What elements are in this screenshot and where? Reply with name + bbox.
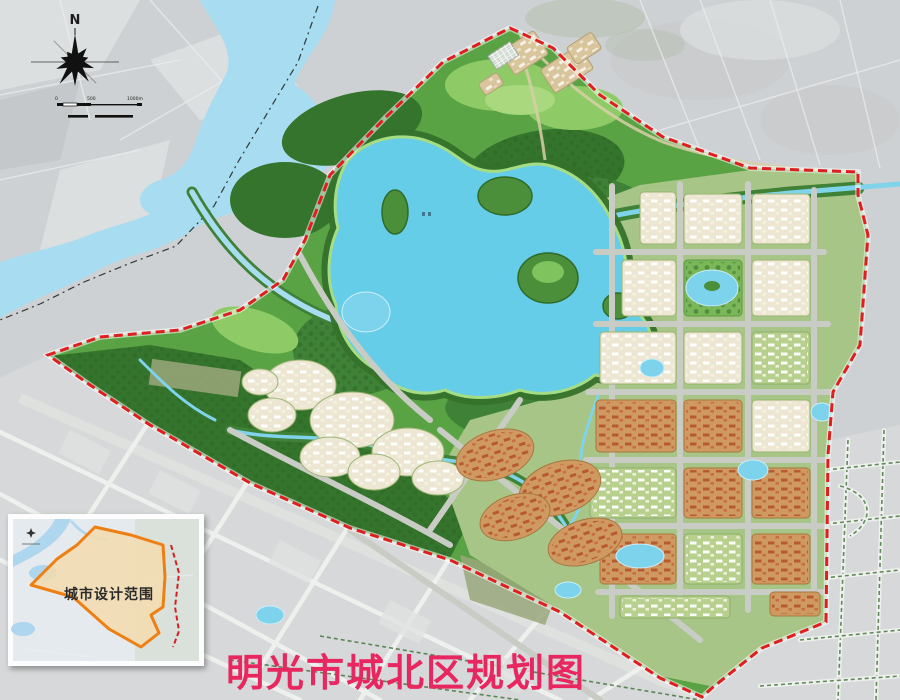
svg-text:0: 0 (55, 96, 58, 102)
pond (616, 544, 664, 568)
residential-block (752, 400, 810, 452)
inset-label: 城市设计范围 (64, 586, 154, 603)
residential-block (684, 194, 742, 244)
pond (342, 292, 390, 332)
residential-block (770, 592, 820, 616)
residential-block (590, 468, 676, 518)
pond (640, 359, 664, 377)
residential-block (640, 192, 676, 244)
residential-block (620, 596, 730, 618)
residential-block (752, 534, 810, 584)
residential-block (752, 332, 810, 384)
residential-block (684, 332, 742, 384)
residential-block (596, 400, 676, 452)
lake-island (382, 190, 408, 234)
svg-text:1000m: 1000m (127, 96, 143, 102)
west-cluster-block (242, 369, 278, 395)
planning-map-canvas: N 0 500 1000m (0, 0, 900, 700)
residential-block (684, 400, 742, 452)
pond (256, 606, 284, 624)
residential-block (684, 534, 742, 584)
planning-map-screenshot: N 0 500 1000m (0, 0, 900, 700)
svg-text:500: 500 (87, 96, 96, 102)
residential-block (684, 468, 742, 518)
map-title: 明光市城北区规划图 (226, 651, 586, 695)
west-cluster-block (248, 398, 296, 432)
west-cluster-block (348, 454, 400, 490)
compass-label: N (70, 13, 81, 28)
residential-block (600, 332, 676, 384)
pond (738, 460, 768, 480)
residential-block (752, 194, 810, 244)
lake-island (478, 177, 532, 215)
inset-map-card: 城市设计范围 (8, 514, 204, 666)
residential-block (752, 260, 810, 316)
pond (555, 582, 581, 598)
residential-block (622, 260, 676, 316)
